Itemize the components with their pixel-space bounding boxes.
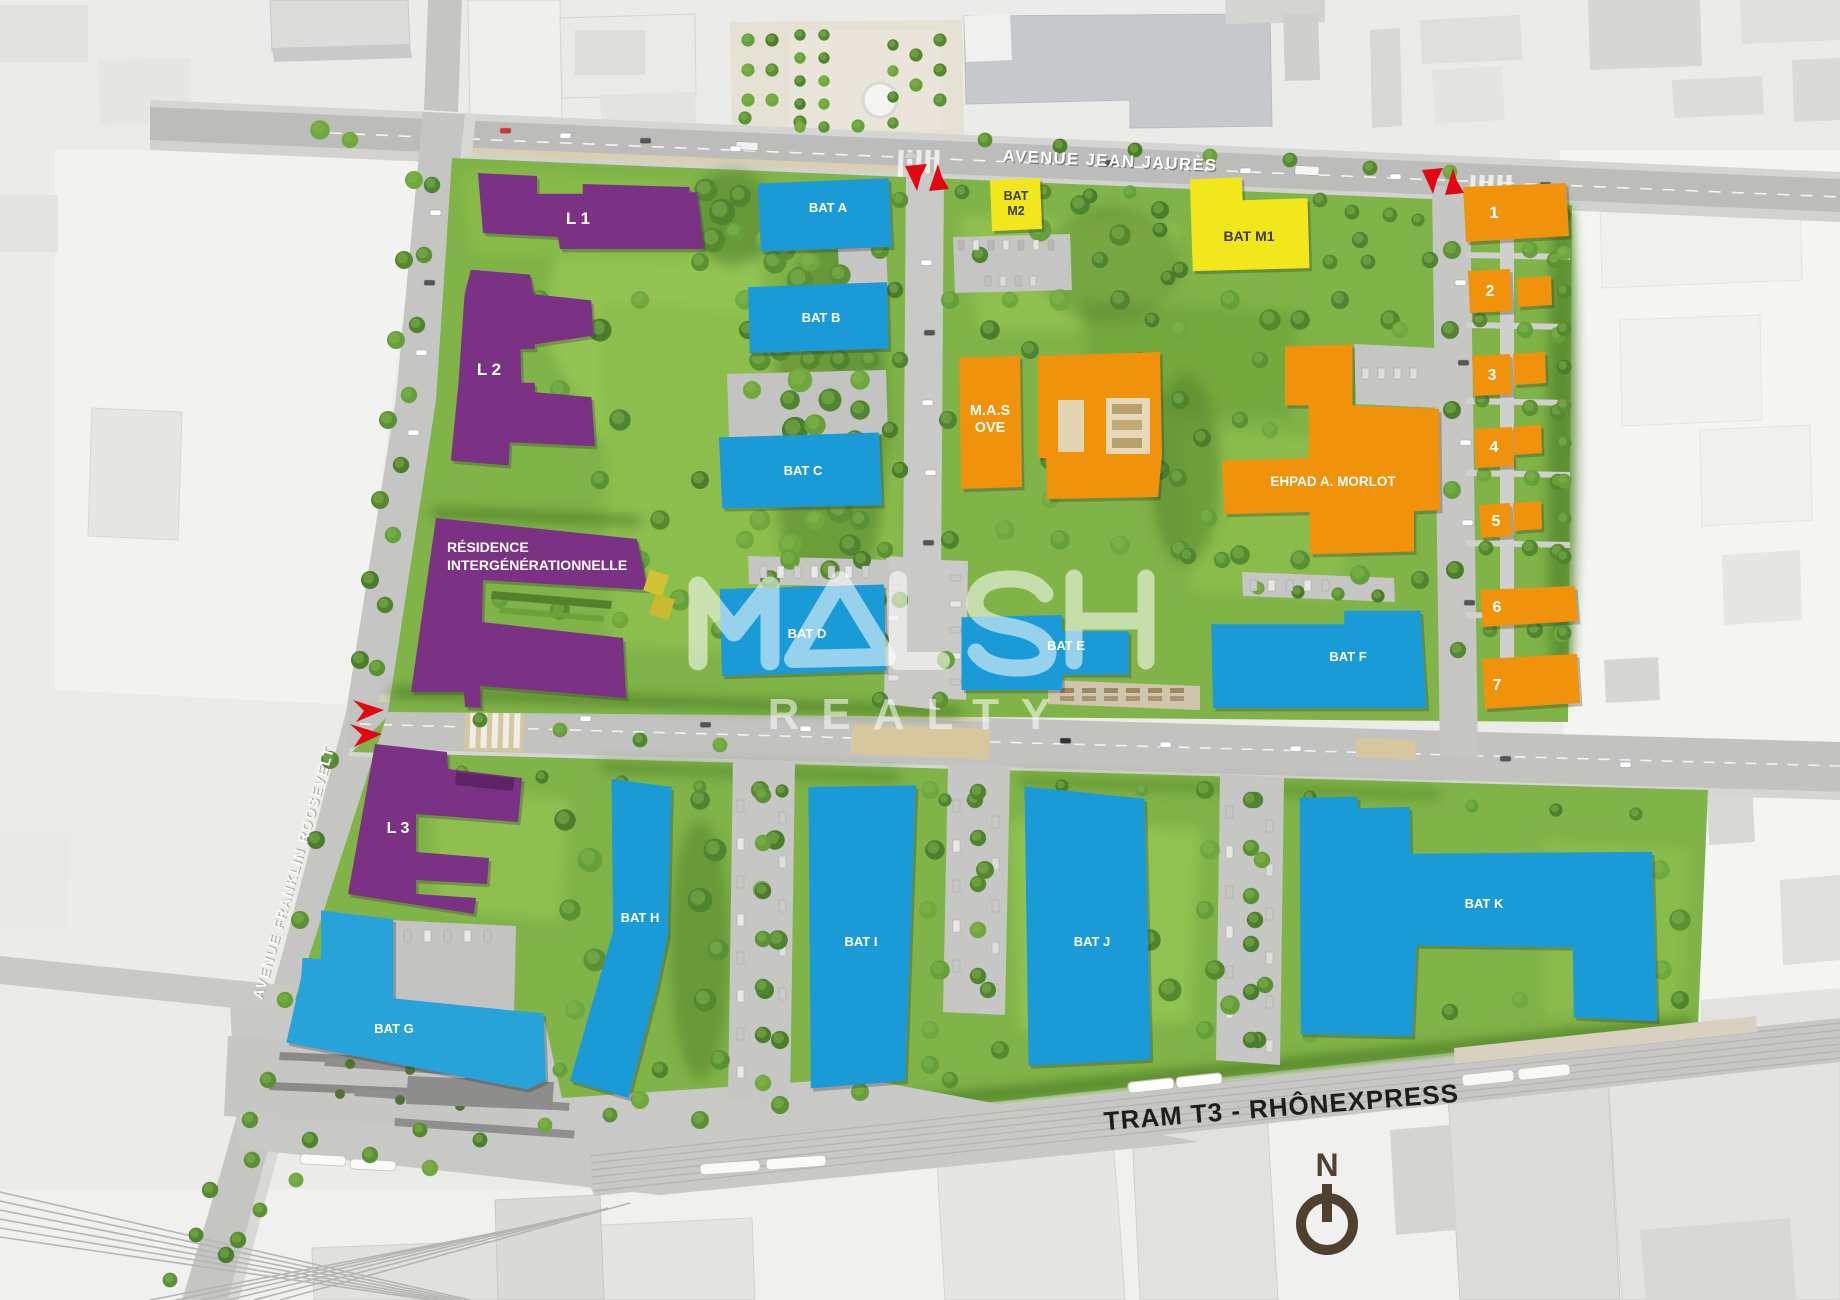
- svg-text:7: 7: [1493, 677, 1502, 694]
- svg-text:BAT B: BAT B: [802, 310, 841, 325]
- svg-text:BAT G: BAT G: [374, 1021, 413, 1036]
- svg-text:EHPAD A. MORLOT: EHPAD A. MORLOT: [1270, 474, 1396, 489]
- svg-text:BAT C: BAT C: [784, 463, 823, 478]
- svg-text:BAT M1: BAT M1: [1223, 228, 1274, 244]
- svg-text:N: N: [1315, 1147, 1338, 1183]
- svg-text:1: 1: [1489, 203, 1498, 222]
- svg-text:L 3: L 3: [387, 820, 410, 837]
- svg-text:L 1: L 1: [566, 209, 590, 228]
- svg-text:5: 5: [1492, 513, 1501, 530]
- svg-text:2: 2: [1486, 283, 1495, 300]
- svg-text:REALTY: REALTY: [768, 690, 1073, 739]
- svg-text:4: 4: [1490, 439, 1499, 456]
- svg-text:BAT J: BAT J: [1074, 934, 1111, 949]
- svg-text:BAT: BAT: [1004, 189, 1029, 203]
- svg-text:M.A.S: M.A.S: [970, 403, 1011, 419]
- svg-text:BAT H: BAT H: [621, 910, 660, 925]
- svg-text:3: 3: [1488, 367, 1497, 384]
- svg-text:M2: M2: [1007, 204, 1024, 218]
- svg-text:OVE: OVE: [975, 420, 1006, 436]
- svg-text:BAT F: BAT F: [1329, 649, 1366, 664]
- svg-text:BAT K: BAT K: [1465, 896, 1504, 911]
- svg-text:INTERGÉNÉRATIONNELLE: INTERGÉNÉRATIONNELLE: [447, 557, 627, 573]
- svg-text:RÉSIDENCE: RÉSIDENCE: [447, 539, 529, 555]
- svg-text:BAT I: BAT I: [845, 934, 878, 949]
- svg-text:BAT A: BAT A: [809, 200, 848, 215]
- svg-text:6: 6: [1493, 599, 1502, 616]
- svg-text:L 2: L 2: [477, 360, 501, 379]
